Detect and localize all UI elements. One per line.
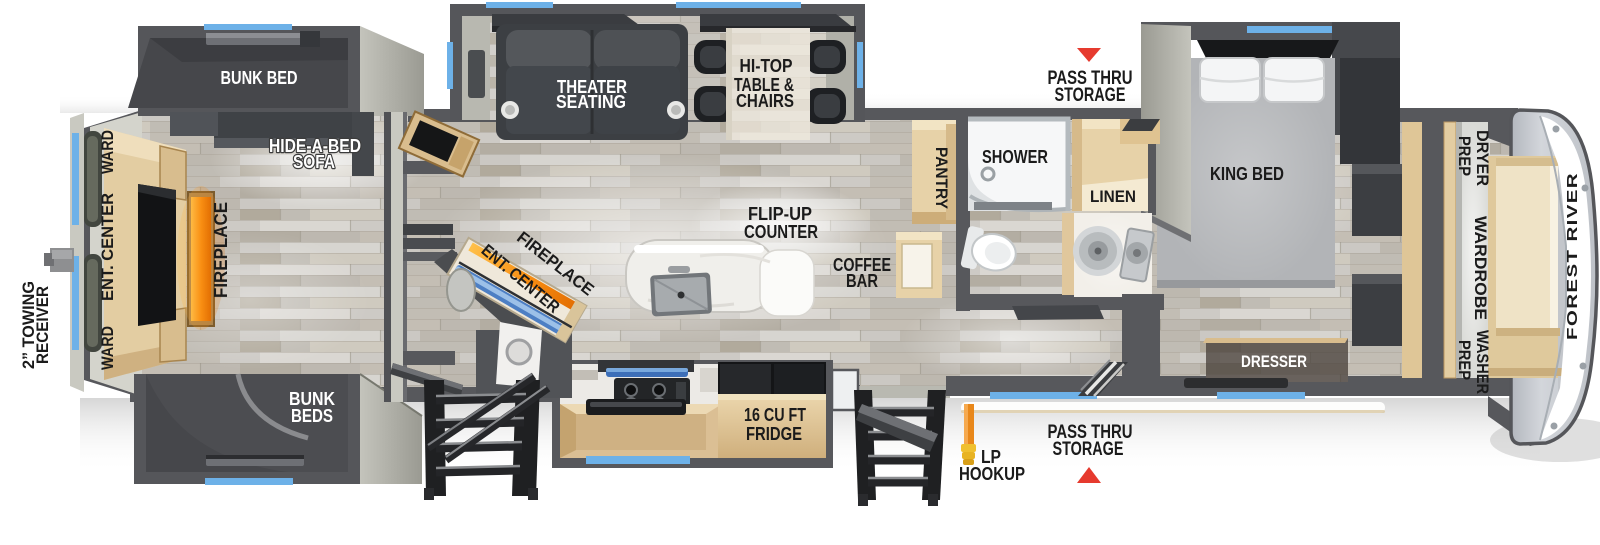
- svg-text:RECEIVER: RECEIVER: [33, 286, 52, 364]
- svg-text:CHAIRS: CHAIRS: [736, 91, 794, 111]
- svg-text:FOREST RIVER: FOREST RIVER: [1564, 172, 1581, 340]
- svg-text:WARDROBE: WARDROBE: [1471, 216, 1490, 320]
- svg-text:FRIDGE: FRIDGE: [746, 424, 802, 444]
- svg-text:WARD: WARD: [98, 326, 117, 370]
- svg-text:16 CU FT: 16 CU FT: [744, 405, 806, 425]
- svg-text:PREP: PREP: [1455, 340, 1474, 380]
- svg-text:HI-TOP: HI-TOP: [740, 56, 793, 76]
- svg-text:BAR: BAR: [846, 271, 878, 291]
- svg-text:DRYER: DRYER: [1473, 130, 1492, 186]
- svg-text:KING BED: KING BED: [1210, 164, 1284, 184]
- svg-text:DRESSER: DRESSER: [1241, 352, 1307, 371]
- svg-text:STORAGE: STORAGE: [1055, 85, 1126, 106]
- svg-text:WASHER: WASHER: [1473, 330, 1492, 394]
- svg-text:PREP: PREP: [1455, 136, 1474, 176]
- svg-text:PANTRY: PANTRY: [932, 147, 951, 210]
- svg-text:FLIP-UP: FLIP-UP: [748, 204, 812, 224]
- svg-text:HOOKUP: HOOKUP: [959, 464, 1025, 484]
- svg-text:SHOWER: SHOWER: [982, 147, 1048, 167]
- svg-text:STORAGE: STORAGE: [1053, 439, 1124, 460]
- svg-text:FIREPLACE: FIREPLACE: [211, 202, 231, 298]
- svg-text:ENT. CENTER: ENT. CENTER: [98, 193, 117, 301]
- svg-text:SEATING: SEATING: [556, 92, 626, 112]
- svg-text:SOFA: SOFA: [293, 152, 335, 172]
- svg-text:BEDS: BEDS: [291, 406, 333, 426]
- svg-text:WARD: WARD: [98, 130, 117, 174]
- svg-text:BUNK BED: BUNK BED: [221, 68, 298, 88]
- svg-text:LINEN: LINEN: [1090, 187, 1136, 206]
- svg-text:COUNTER: COUNTER: [744, 222, 818, 242]
